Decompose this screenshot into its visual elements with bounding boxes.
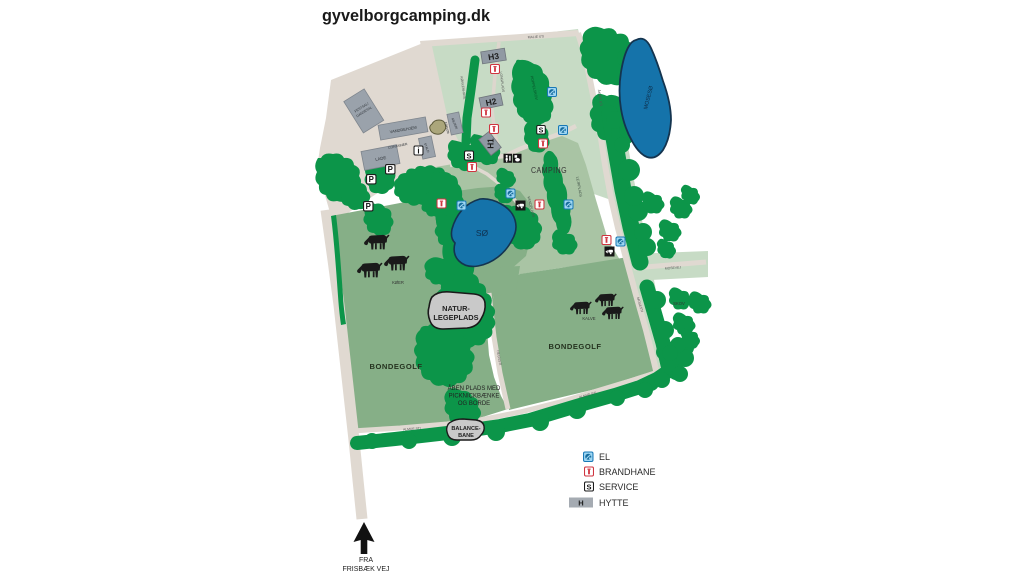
svg-text:PICKNICKBÆNKE: PICKNICKBÆNKE [449,394,500,400]
svg-text:BALANCE-: BALANCE- [451,426,480,432]
svg-text:KØER: KØER [392,280,404,285]
svg-text:OG BORDE: OG BORDE [458,401,490,407]
svg-text:CAMPING: CAMPING [531,165,567,175]
svg-text:H1: H1 [487,138,496,149]
svg-text:NATUR-: NATUR- [442,304,470,313]
svg-text:ÅBEN PLADS MED: ÅBEN PLADS MED [448,385,501,392]
svg-text:EL: EL [599,452,610,462]
svg-text:SKOV: SKOV [673,301,685,306]
svg-text:SØ: SØ [476,228,489,238]
svg-text:BONDEGOLF: BONDEGOLF [369,362,422,371]
svg-text:BRANDHANE: BRANDHANE [599,467,656,477]
svg-text:SERVICE: SERVICE [599,482,638,492]
svg-text:H3: H3 [487,51,500,63]
svg-text:LEGEPLADS: LEGEPLADS [433,313,478,322]
svg-text:BANE: BANE [458,433,474,439]
svg-text:FRISBÆK VEJ: FRISBÆK VEJ [342,566,389,573]
svg-text:gyvelborgcamping.dk: gyvelborgcamping.dk [322,6,491,25]
svg-text:FRA: FRA [359,557,373,564]
svg-text:H: H [578,499,583,508]
svg-text:KALVE: KALVE [582,316,595,321]
svg-text:HYTTE: HYTTE [599,498,629,508]
svg-text:BONDEGOLF: BONDEGOLF [548,342,601,351]
